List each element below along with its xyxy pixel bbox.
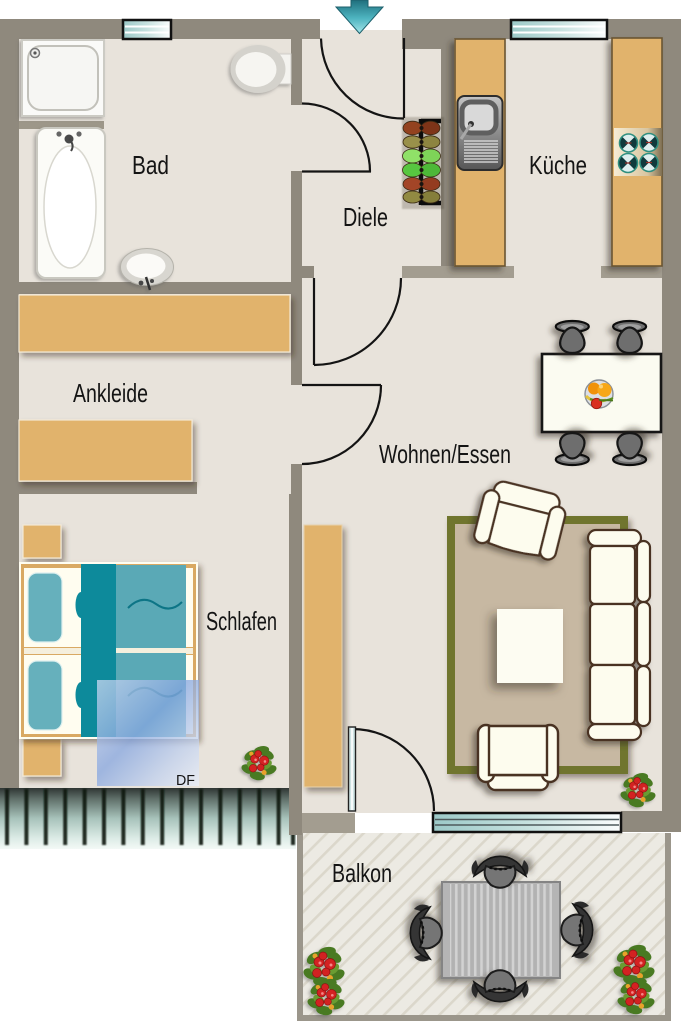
svg-text:Diele: Diele	[343, 202, 388, 232]
svg-text:Schlafen: Schlafen	[206, 606, 277, 636]
svg-text:Bad: Bad	[132, 150, 169, 180]
svg-text:DF: DF	[176, 772, 195, 789]
svg-text:Balkon: Balkon	[332, 858, 392, 888]
svg-text:Wohnen/Essen: Wohnen/Essen	[379, 439, 511, 469]
svg-text:Küche: Küche	[529, 150, 587, 180]
svg-text:Ankleide: Ankleide	[73, 378, 148, 408]
